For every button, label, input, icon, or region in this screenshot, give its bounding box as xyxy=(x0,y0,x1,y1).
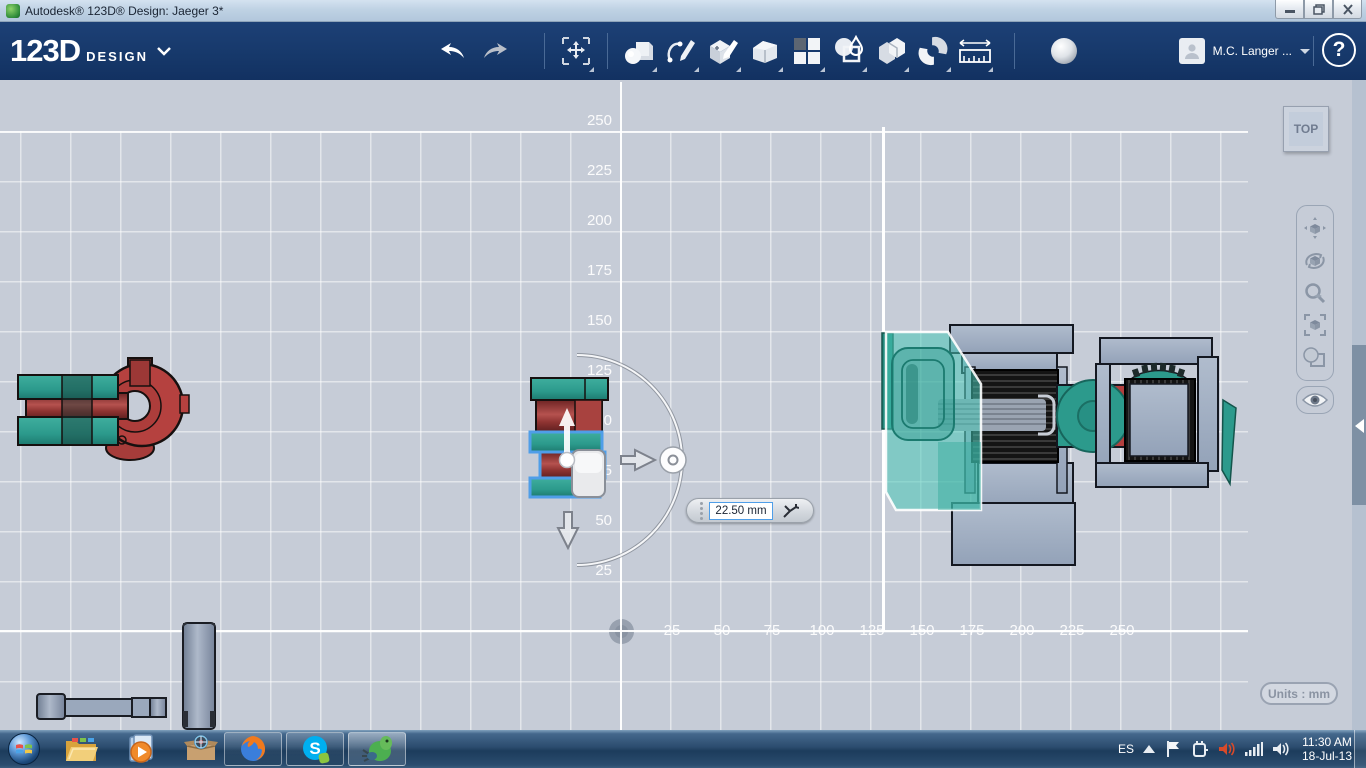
clock-time: 11:30 AM xyxy=(1302,735,1352,749)
explorer-icon xyxy=(64,735,98,763)
transform-icon xyxy=(561,36,591,66)
model-main-assembly[interactable] xyxy=(878,322,1244,572)
split-icon xyxy=(875,35,907,67)
media-player-button[interactable] xyxy=(122,732,160,766)
viewport[interactable]: 250225200175150125100755025 255075100125… xyxy=(0,80,1366,730)
zoom-icon xyxy=(1303,281,1327,305)
main-toolbar: 123D DESIGN xyxy=(0,22,1366,80)
minimize-icon xyxy=(1284,5,1296,14)
x-axis-label: 200 xyxy=(1000,622,1044,639)
x-axis-label: 150 xyxy=(900,622,944,639)
view-cube-label: TOP xyxy=(1294,122,1318,136)
combine-tool-button[interactable] xyxy=(828,28,870,74)
app-icon xyxy=(6,4,20,18)
visibility-toolbar xyxy=(1296,386,1334,414)
123d-app-button[interactable] xyxy=(348,732,406,766)
show-desktop-button[interactable] xyxy=(1354,730,1366,768)
start-button[interactable] xyxy=(8,733,40,765)
material-tool-button[interactable] xyxy=(1043,28,1085,74)
model-gray-parts[interactable] xyxy=(28,615,220,730)
app-menu[interactable]: 123D DESIGN xyxy=(10,33,172,69)
pan-icon xyxy=(1303,216,1327,240)
box-app-button[interactable] xyxy=(182,732,220,766)
undo-button[interactable] xyxy=(432,28,474,74)
user-account[interactable]: M.C. Langer ... xyxy=(1179,22,1310,80)
x-axis-label: 175 xyxy=(950,622,994,639)
network-signal-icon xyxy=(1245,742,1263,756)
titlebar: Autodesk® 123D® Design: Jaeger 3* xyxy=(0,0,1366,22)
fit-button[interactable] xyxy=(1302,312,1328,338)
model-red-rotator[interactable] xyxy=(10,348,200,468)
modify-tool-button[interactable] xyxy=(744,28,786,74)
undo-icon xyxy=(438,40,468,62)
measure-icon xyxy=(957,37,993,65)
audio-app-icon xyxy=(1218,741,1236,757)
x-axis-label: 100 xyxy=(800,622,844,639)
flag-icon xyxy=(1164,740,1182,758)
avatar xyxy=(1179,38,1205,64)
drag-grip-icon[interactable] xyxy=(693,502,709,520)
modify-icon xyxy=(749,36,781,66)
tray-expand-icon xyxy=(1143,745,1155,753)
tray-expand-button[interactable] xyxy=(1143,745,1155,753)
action-center-button[interactable] xyxy=(1164,740,1182,758)
grid-boundary-line xyxy=(0,131,1248,133)
volume-button[interactable] xyxy=(1272,741,1290,757)
selected-model-with-manipulator[interactable] xyxy=(515,350,691,582)
redo-icon xyxy=(480,40,510,62)
volume-icon xyxy=(1272,741,1290,757)
start-orb-icon xyxy=(15,741,33,757)
skype-icon: S xyxy=(300,734,330,764)
y-axis-label: 200 xyxy=(566,212,612,229)
explorer-button[interactable] xyxy=(62,732,100,766)
primitives-icon xyxy=(622,36,656,66)
power-plug-icon xyxy=(1191,740,1209,758)
visibility-eye-icon xyxy=(1302,392,1328,408)
redo-button[interactable] xyxy=(474,28,516,74)
units-indicator[interactable]: Units : mm xyxy=(1260,682,1338,705)
shade-icon xyxy=(1302,346,1328,370)
orbit-icon xyxy=(1303,249,1327,273)
x-axis-label: 225 xyxy=(1050,622,1094,639)
snap-icon xyxy=(917,36,949,66)
pan-button[interactable] xyxy=(1302,215,1328,241)
system-tray: ES xyxy=(1109,730,1352,768)
restore-icon xyxy=(1313,4,1325,15)
logo-subtext: DESIGN xyxy=(86,49,148,64)
construct-tool-button[interactable] xyxy=(702,28,744,74)
navigation-toolbar xyxy=(1296,205,1334,381)
firefox-button[interactable] xyxy=(224,732,282,766)
ruler-options-button[interactable] xyxy=(781,503,799,519)
dimension-input[interactable] xyxy=(709,502,773,520)
x-axis-label: 250 xyxy=(1100,622,1144,639)
pattern-tool-button[interactable] xyxy=(786,28,828,74)
close-icon xyxy=(1342,4,1354,15)
sketch-tool-button[interactable] xyxy=(660,28,702,74)
clock-date: 18-Jul-13 xyxy=(1302,749,1352,763)
primitives-tool-button[interactable] xyxy=(618,28,660,74)
taskbar: S ES xyxy=(0,730,1366,768)
zoom-button[interactable] xyxy=(1302,280,1328,306)
window-controls xyxy=(1275,0,1362,19)
audio-app-button[interactable] xyxy=(1218,741,1236,757)
right-edge-strip xyxy=(1352,80,1366,730)
help-button[interactable]: ? xyxy=(1322,33,1356,67)
power-button[interactable] xyxy=(1191,740,1209,758)
media-player-icon xyxy=(126,734,156,764)
panel-handle[interactable] xyxy=(1352,345,1366,505)
box-app-icon xyxy=(184,734,218,764)
y-axis-label: 175 xyxy=(566,262,612,279)
restore-button[interactable] xyxy=(1304,0,1333,19)
language-indicator[interactable]: ES xyxy=(1118,742,1134,756)
clock[interactable]: 11:30 AM 18-Jul-13 xyxy=(1302,735,1352,763)
units-label: Units : mm xyxy=(1268,687,1330,701)
dropdown-caret-icon xyxy=(1300,49,1310,54)
chevron-down-icon xyxy=(156,46,172,56)
logo-text: 123D xyxy=(10,33,80,69)
x-axis-label: 25 xyxy=(650,622,694,639)
x-axis-label: 125 xyxy=(850,622,894,639)
avatar-icon xyxy=(1183,42,1201,60)
view-cube[interactable]: TOP xyxy=(1283,106,1329,152)
close-button[interactable] xyxy=(1333,0,1362,19)
y-axis-label: 225 xyxy=(566,162,612,179)
skype-button[interactable]: S xyxy=(286,732,344,766)
panel-open-arrow-icon xyxy=(1355,419,1364,433)
measure-tool-button[interactable] xyxy=(954,28,996,74)
firefox-icon xyxy=(238,734,268,764)
x-axis-label: 50 xyxy=(700,622,744,639)
x-axis-label: 75 xyxy=(750,622,794,639)
fit-icon xyxy=(1303,313,1327,337)
combine-icon xyxy=(832,35,866,67)
pattern-icon xyxy=(793,37,821,65)
123d-app-icon xyxy=(360,734,394,764)
window-title: Autodesk® 123D® Design: Jaeger 3* xyxy=(25,4,223,18)
dimension-widget[interactable] xyxy=(686,498,814,523)
visibility-button[interactable] xyxy=(1302,387,1328,413)
y-axis-label: 150 xyxy=(566,312,612,329)
user-name: M.C. Langer ... xyxy=(1213,44,1292,58)
network-button[interactable] xyxy=(1245,742,1263,756)
split-tool-button[interactable] xyxy=(870,28,912,74)
minimize-button[interactable] xyxy=(1275,0,1304,19)
shade-button[interactable] xyxy=(1302,345,1328,371)
construct-icon xyxy=(706,36,740,66)
y-axis-label: 250 xyxy=(566,112,612,129)
material-sphere-icon xyxy=(1049,36,1079,66)
help-icon: ? xyxy=(1333,38,1346,62)
ruler-options-icon xyxy=(781,503,799,519)
sketch-icon xyxy=(664,36,698,66)
snap-tool-button[interactable] xyxy=(912,28,954,74)
transform-tool-button[interactable] xyxy=(555,28,597,74)
orbit-button[interactable] xyxy=(1302,248,1328,274)
